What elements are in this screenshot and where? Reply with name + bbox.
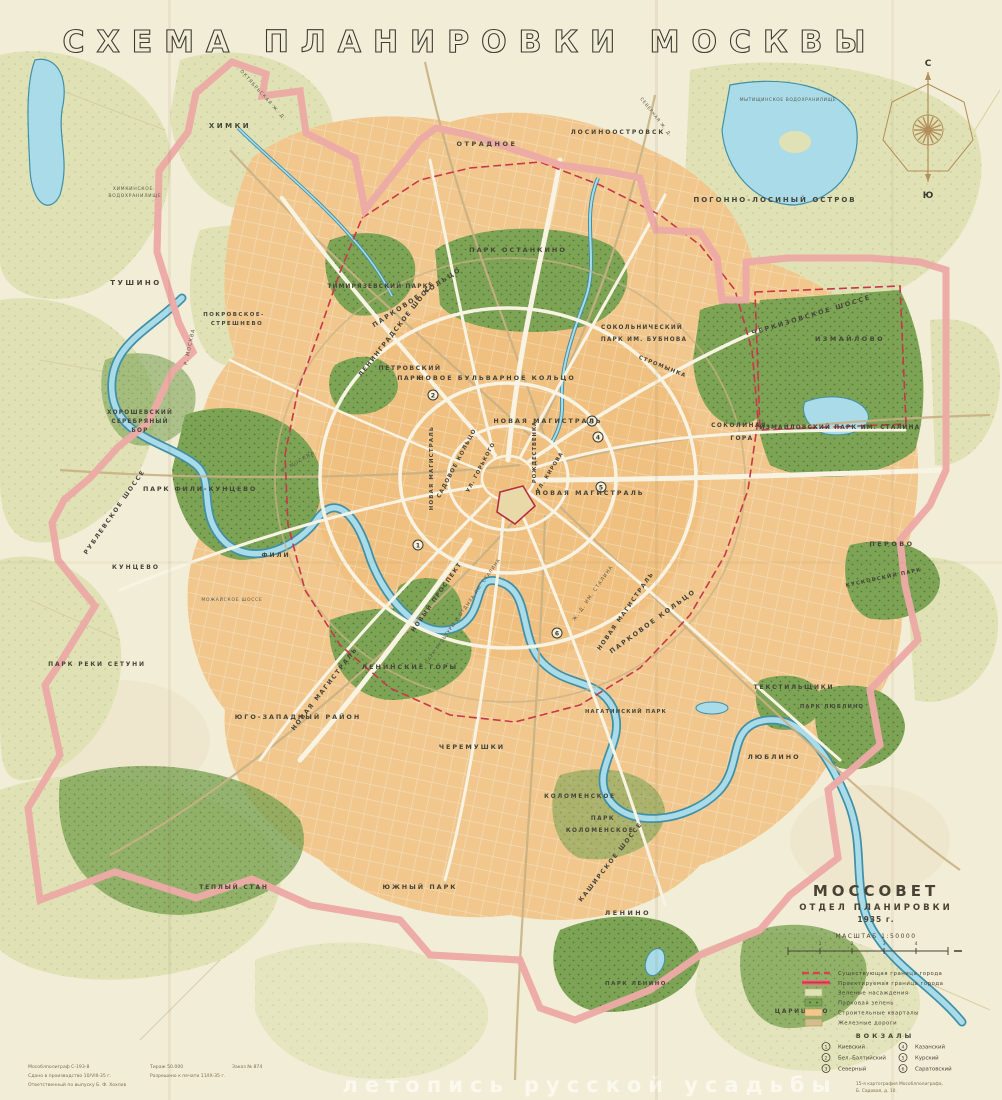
legend-label-existing-boundary: Существующая граница города xyxy=(838,971,942,977)
publisher-org: МОССОВЕТ xyxy=(813,882,939,900)
label-yuzhny-park: ЮЖНЫЙ ПАРК xyxy=(382,882,457,891)
vokzal-name: Курский xyxy=(915,1055,939,1062)
imprint-line: Мособлполиграф С-193-8 xyxy=(28,1064,89,1070)
label-lenino: ЛЕНИНО xyxy=(605,909,651,917)
station-marker: 2 xyxy=(428,390,438,400)
legend-label-green-plantings: Зеленые насаждения xyxy=(838,991,909,997)
label-kuntsevo: КУНЦЕВО xyxy=(112,564,160,571)
label-pokrovskoe-2: СТРЕШНЕВО xyxy=(211,321,263,327)
legend-swatch-building-quarters xyxy=(805,1009,822,1016)
scale-tick: 3 xyxy=(883,941,886,947)
legend-label-park-green: Парковая зелень xyxy=(838,1001,894,1007)
label-park-kolomenskoe-2: КОЛОМЕНСКОЕ xyxy=(566,828,634,834)
label-timiryazevsky: ТИМИРЯЗЕВСКИЙ ПАРК xyxy=(327,282,428,290)
label-khoroshevsky-3: БОР xyxy=(131,428,148,434)
station-marker: 4 xyxy=(593,432,603,442)
legend-swatch-park-green xyxy=(805,999,822,1006)
label-khimki-reservoir-1: ХИМКИНСКОЕ xyxy=(113,186,153,192)
legend-swatch-green-plantings xyxy=(805,989,822,996)
vokzal-name: Киевский xyxy=(838,1044,866,1051)
label-novaya-magistral-west: НОВАЯ МАГИСТРАЛЬ xyxy=(429,426,435,510)
label-khimki: ХИМКИ xyxy=(209,122,251,130)
imprint-line: Тираж 50.000 xyxy=(149,1064,183,1070)
scale-tick: 1 xyxy=(819,941,822,947)
label-park-lyublino: ПАРК ЛЮБЛИНО xyxy=(800,704,864,710)
label-mytishchi-reservoir: МЫТИЩИНСКОЕ ВОДОХРАНИЛИЩЕ xyxy=(740,97,837,103)
label-kolomenskoe: КОЛОМЕНСКОЕ xyxy=(544,794,616,800)
label-khoroshevsky-2: СЕРЕБРЯНЫЙ xyxy=(111,417,168,425)
vokzal-name: Саратовский xyxy=(915,1066,952,1073)
label-sokolinaya-1: СОКОЛИНАЯ xyxy=(711,423,767,429)
label-nagatinsky: НАГАТИНСКИЙ ПАРК xyxy=(585,707,667,715)
label-rozhdestvenka: РОЖДЕСТВЕНКА xyxy=(532,421,538,483)
label-tepliy-stan: ТЕПЛЫЙ СТАН xyxy=(199,883,269,891)
legend-label-building-quarters: Строительные кварталы xyxy=(838,1011,919,1017)
svg-text:1: 1 xyxy=(416,543,420,550)
label-losinoostrovsk: ЛОСИНООСТРОВСК xyxy=(571,129,666,136)
publisher-year: 1935 г. xyxy=(857,915,894,924)
label-sokolniki-2: ПАРК ИМ. БУБНОВА xyxy=(601,337,687,343)
legend-label-projected-boundary: Проектируемая граница города xyxy=(838,981,943,987)
label-ostankino: ПАРК ОСТАНКИНО xyxy=(469,246,567,254)
svg-text:5: 5 xyxy=(902,1056,905,1062)
imprint-line: 15-я картография Мособлполиграфа, xyxy=(856,1080,943,1087)
label-tushino: ТУШИНО xyxy=(110,279,162,287)
label-mozhayskoe: МОЖАЙСКОЕ ШОССЕ xyxy=(201,596,262,603)
imprint-line: Ответственный по выпуску Б. Ф. Хохлов xyxy=(28,1081,126,1088)
label-khoroshevsky-1: ХОРОШЕВСКИЙ xyxy=(107,408,173,416)
label-pokrovskoe-1: ПОКРОВСКОЕ- xyxy=(203,312,265,318)
legend-label-railways: Железные дороги xyxy=(838,1021,897,1027)
svg-text:2: 2 xyxy=(431,393,435,400)
svg-text:6: 6 xyxy=(902,1067,905,1073)
label-petrovsky-1: ПЕТРОВСКИЙ xyxy=(378,363,441,372)
label-park-kolomenskoe-1: ПАРК xyxy=(591,816,615,822)
map-title: СХЕМА ПЛАНИРОВКИ МОСКВЫ xyxy=(63,25,878,60)
label-novaya-magistral-north: НОВАЯ МАГИСТРАЛЬ xyxy=(493,417,602,425)
svg-text:6: 6 xyxy=(555,631,559,638)
vokzal-name: Казанский xyxy=(915,1044,946,1051)
label-pogonno-losiny: ПОГОННО-ЛОСИНЫЙ ОСТРОВ xyxy=(693,195,856,204)
label-sokolniki-1: СОКОЛЬНИЧЕСКИЙ xyxy=(601,323,683,331)
label-leninskie-gory: ЛЕНИНСКИЕ ГОРЫ xyxy=(362,663,458,671)
station-marker: 6 xyxy=(552,628,562,638)
label-lyublino: ЛЮБЛИНО xyxy=(747,753,800,761)
label-park-fili-kuntsevo: ПАРК ФИЛИ-КУНЦЕВО xyxy=(143,485,257,493)
label-khimki-reservoir-2: ВОДОХРАНИЛИЩЕ xyxy=(108,193,161,199)
label-novoe-bulvarnoe: НОВОЕ БУЛЬВАРНОЕ КОЛЬЦО xyxy=(418,374,576,382)
scale-tick: 2 xyxy=(851,941,854,947)
svg-text:1: 1 xyxy=(825,1045,828,1051)
label-cheremushki: ЧЕРЕМУШКИ xyxy=(439,743,505,751)
label-fili: ФИЛИ xyxy=(262,552,291,559)
svg-text:2: 2 xyxy=(825,1056,828,1062)
publisher-dept: ОТДЕЛ ПЛАНИРОВКИ xyxy=(799,903,952,913)
map-page: 1 2 3 4 5 6 ХИМКИ ОКТЯБРЬСКАЯ Ж. Д. ТУШИ… xyxy=(0,0,1002,1100)
vokzal-name: Северный xyxy=(838,1066,867,1073)
label-tekstilshchiki: ТЕКСТИЛЬЩИКИ xyxy=(754,684,835,691)
moscow-plan-map: 1 2 3 4 5 6 ХИМКИ ОКТЯБРЬСКАЯ Ж. Д. ТУШИ… xyxy=(0,0,1002,1100)
svg-text:4: 4 xyxy=(902,1045,905,1051)
vokzal-name: Бел.-Балтийский xyxy=(838,1055,886,1062)
label-izmailovo: ИЗМАЙЛОВО xyxy=(815,334,885,343)
compass-north-label: С xyxy=(925,59,932,69)
scale-tick: 4 xyxy=(915,941,918,947)
label-otradnoe: ОТРАДНОЕ xyxy=(457,140,518,148)
label-novaya-magistral-mid: НОВАЯ МАГИСТРАЛЬ xyxy=(535,489,644,497)
label-sokolinaya-2: ГОРА xyxy=(730,436,753,442)
vokzaly-title: ВОКЗАЛЫ xyxy=(856,1032,915,1040)
legend-swatch-railways xyxy=(805,1019,822,1026)
svg-text:4: 4 xyxy=(596,435,600,442)
svg-text:3: 3 xyxy=(825,1067,828,1073)
imprint-line: Разрешено к печати 11/IX-35 г. xyxy=(150,1073,225,1079)
label-park-setuni: ПАРК РЕКИ СЕТУНИ xyxy=(48,661,146,668)
map-scale: МАСШТАБ 1:50000 xyxy=(835,933,916,940)
imprint-line: Заказ № 874 xyxy=(232,1064,262,1070)
imprint-line: Сдано в производство 10/VIII-35 г. xyxy=(28,1073,111,1079)
compass-south-label: Ю xyxy=(923,191,934,201)
watermark-text: летопись русской усадьбы xyxy=(342,1073,837,1097)
imprint-line: Б. Садовая, д. 10. xyxy=(856,1088,897,1094)
label-izmailovsky-park: ИЗМАЙЛОВСКИЙ ПАРК ИМ. СТАЛИНА xyxy=(760,423,921,431)
station-marker: 1 xyxy=(413,540,423,550)
label-yugozapadny: ЮГО-ЗАПАДНЫЙ РАЙОН xyxy=(235,712,361,721)
